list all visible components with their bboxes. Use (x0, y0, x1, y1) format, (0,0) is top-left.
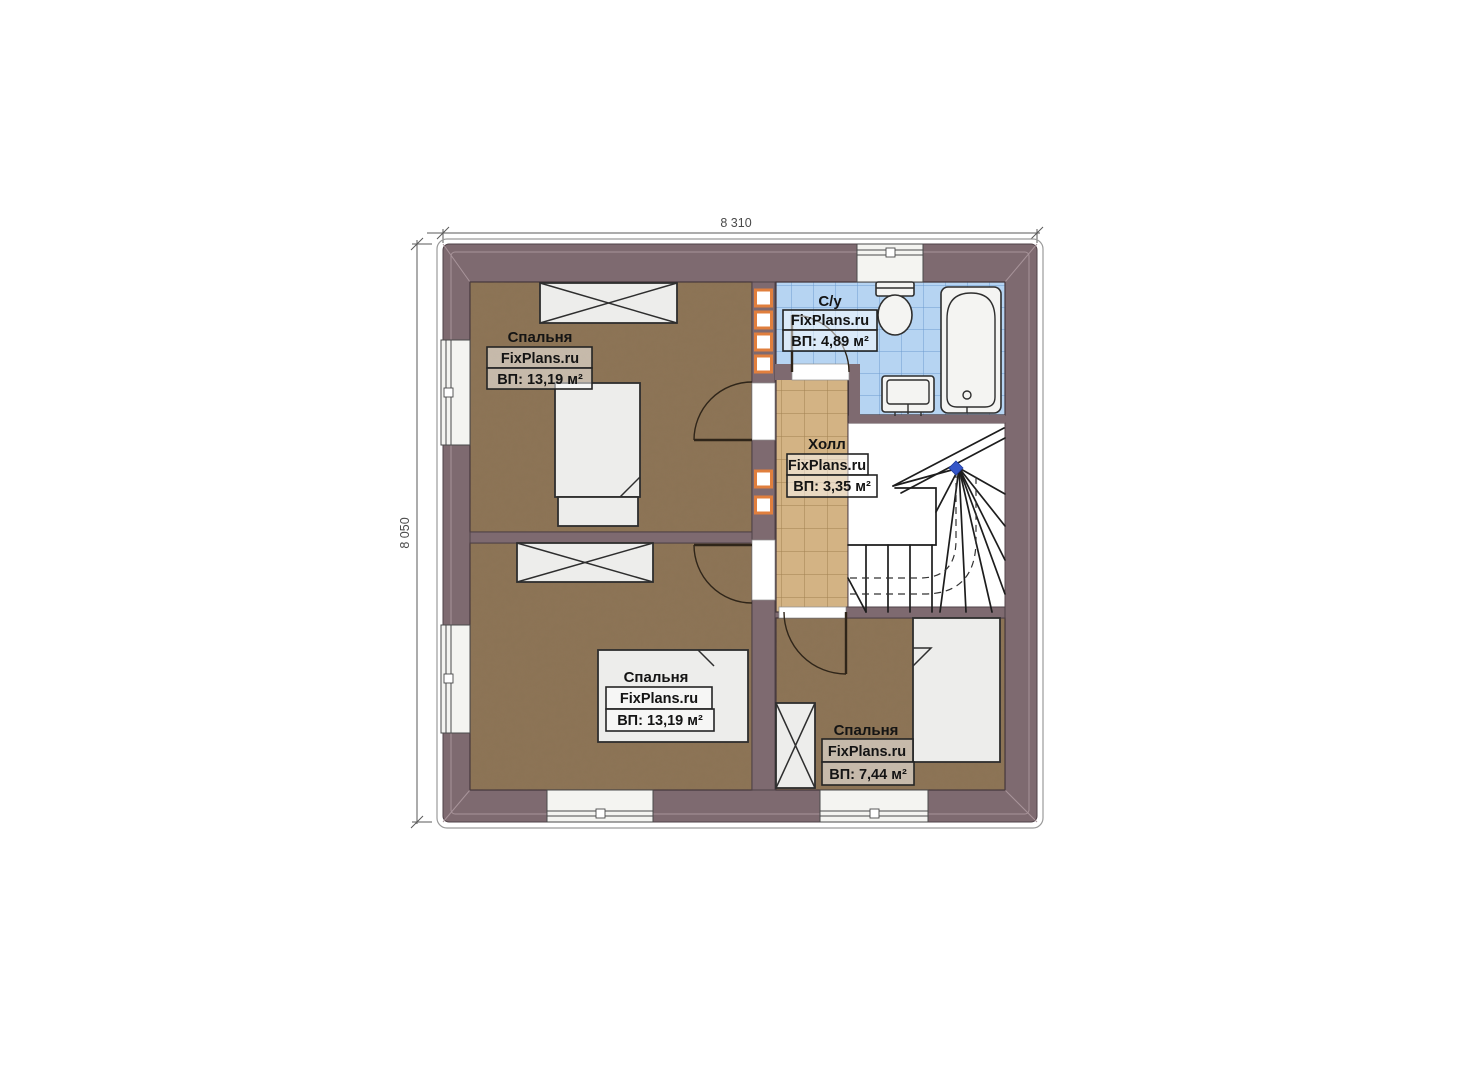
bed-icon-bedroom-bottom-right (913, 618, 1000, 762)
sink-icon (882, 376, 934, 416)
room-name: Холл (808, 436, 846, 453)
room-name: Спальня (508, 329, 573, 346)
room-area: ВП: 3,35 м² (793, 479, 871, 495)
floor-plan-svg: 8 310 8 050 (0, 0, 1473, 1080)
wall-stairs-bedroom (846, 607, 1005, 618)
window-bottom-left (547, 790, 653, 822)
wall-between-left-bedrooms (470, 532, 752, 543)
room-brand: FixPlans.ru (791, 313, 869, 329)
room-area: ВП: 13,19 м² (497, 372, 583, 388)
wardrobe-icon-bedroom-top-left (540, 283, 677, 323)
wall-bath-door-stub-right (849, 364, 860, 423)
wall-bath-door-stub-left (775, 364, 792, 380)
room-name: С/у (818, 293, 842, 310)
door-opening-bedroom-top-left (752, 383, 775, 440)
room-name: Спальня (834, 722, 899, 739)
room-brand: FixPlans.ru (501, 351, 579, 367)
room-area: ВП: 7,44 м² (829, 767, 907, 783)
wardrobe-icon-bedroom-bottom-right (776, 703, 815, 788)
door-opening-bedroom-bottom-left (752, 540, 775, 600)
window-left-bottom (441, 625, 470, 733)
room-area: ВП: 4,89 м² (791, 334, 869, 350)
dimension-width-label: 8 310 (720, 216, 751, 230)
room-brand: FixPlans.ru (620, 691, 698, 707)
room-brand: FixPlans.ru (788, 458, 866, 474)
dimension-height-label: 8 050 (398, 517, 412, 548)
wardrobe-icon-bedroom-bottom-left (517, 543, 653, 582)
dimension-left: 8 050 (398, 238, 432, 828)
toilet-icon (876, 282, 914, 335)
room-area: ВП: 13,19 м² (617, 713, 703, 729)
door-opening-bedroom-bottom-right (779, 607, 846, 618)
window-top (857, 244, 923, 282)
floor-plan-page: 8 310 8 050 (0, 0, 1473, 1080)
window-left-top (441, 340, 470, 445)
bed-icon-bedroom-top-left (555, 383, 640, 526)
bathtub-icon (941, 287, 1001, 413)
room-brand: FixPlans.ru (828, 744, 906, 760)
window-bottom-right (820, 790, 928, 822)
door-opening-bathroom (792, 364, 849, 380)
wall-bathroom-stairs (849, 415, 1005, 423)
room-name: Спальня (624, 669, 689, 686)
